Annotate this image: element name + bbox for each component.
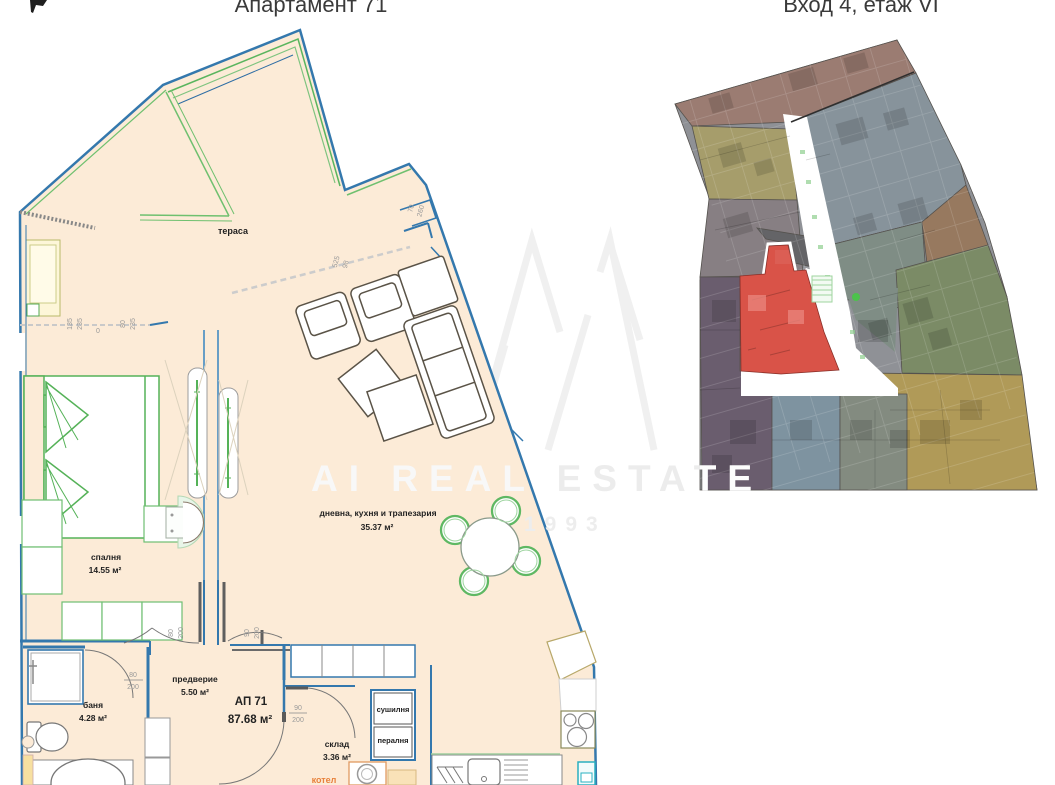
svg-text:80: 80 <box>129 672 137 679</box>
svg-text:предверие: предверие <box>172 674 218 684</box>
svg-text:90: 90 <box>294 705 302 712</box>
svg-text:Вход 4, етаж VI: Вход 4, етаж VI <box>783 0 939 17</box>
svg-text:14.55 м²: 14.55 м² <box>89 565 122 575</box>
svg-text:80: 80 <box>168 629 175 637</box>
svg-text:90: 90 <box>244 629 251 637</box>
svg-text:пералня: пералня <box>377 736 408 745</box>
svg-text:дневна, кухня и трапезария: дневна, кухня и трапезария <box>319 508 436 518</box>
svg-text:спалня: спалня <box>91 552 121 562</box>
svg-text:200: 200 <box>254 627 261 639</box>
svg-text:235: 235 <box>77 318 84 330</box>
svg-text:тераса: тераса <box>218 226 249 236</box>
svg-text:сушилня: сушилня <box>377 705 410 714</box>
svg-text:200: 200 <box>292 717 304 724</box>
svg-text:235: 235 <box>130 318 137 330</box>
svg-text:87.68 м²: 87.68 м² <box>228 714 272 726</box>
svg-text:АП 71: АП 71 <box>235 696 268 708</box>
svg-text:баня: баня <box>83 700 103 710</box>
svg-text:200: 200 <box>127 684 139 691</box>
svg-text:котел: котел <box>312 775 337 785</box>
svg-text:135: 135 <box>67 318 74 330</box>
svg-text:80: 80 <box>120 320 127 328</box>
svg-text:3.36 м²: 3.36 м² <box>323 752 351 762</box>
svg-text:5.50 м²: 5.50 м² <box>181 687 209 697</box>
svg-text:200: 200 <box>178 627 185 639</box>
svg-text:Апартамент 71: Апартамент 71 <box>235 0 388 17</box>
svg-text:склад: склад <box>325 739 350 749</box>
svg-text:0: 0 <box>96 328 100 335</box>
svg-text:4.28 м²: 4.28 м² <box>79 713 107 723</box>
svg-text:35.37 м²: 35.37 м² <box>361 522 394 532</box>
svg-text:1993: 1993 <box>524 513 607 536</box>
